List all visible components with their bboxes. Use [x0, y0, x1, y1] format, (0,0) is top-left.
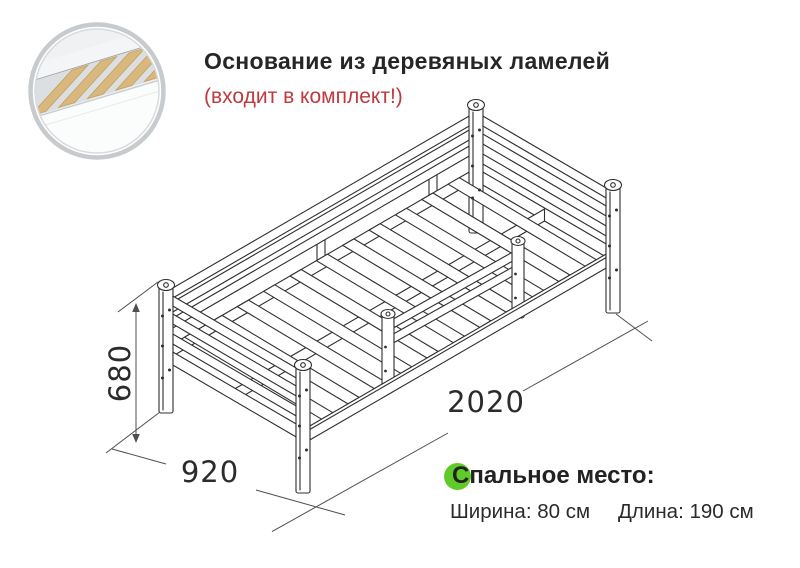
sleeping-area-heading: Спальное место:: [452, 464, 655, 488]
inset-subtitle: (входит в комплект!): [204, 86, 403, 107]
dimension-depth-label: 920: [181, 455, 239, 489]
bed-drawing: [158, 100, 622, 494]
sleeping-area-specs: Ширина: 80 см Длина: 190 см: [450, 502, 754, 523]
sleeping-area-length: Длина: 190 см: [618, 502, 754, 523]
bed-post-head-back: [468, 100, 485, 234]
bed-post-foot-front: [295, 360, 312, 494]
dimension-length-label: 2020: [447, 385, 525, 419]
slats-photo-inset-icon: [20, 14, 202, 168]
page: 680 920 2020 Основание из деревяных ламе…: [0, 0, 800, 568]
dimension-height-680: 680: [103, 282, 160, 453]
bed-post-head-front: [605, 180, 622, 314]
dimension-height-label: 680: [103, 344, 137, 402]
inset-title: Основание из деревяных ламелей: [204, 50, 610, 73]
bed-post-foot-back: [158, 280, 175, 414]
sleeping-area-width: Ширина: 80 см: [450, 502, 590, 523]
